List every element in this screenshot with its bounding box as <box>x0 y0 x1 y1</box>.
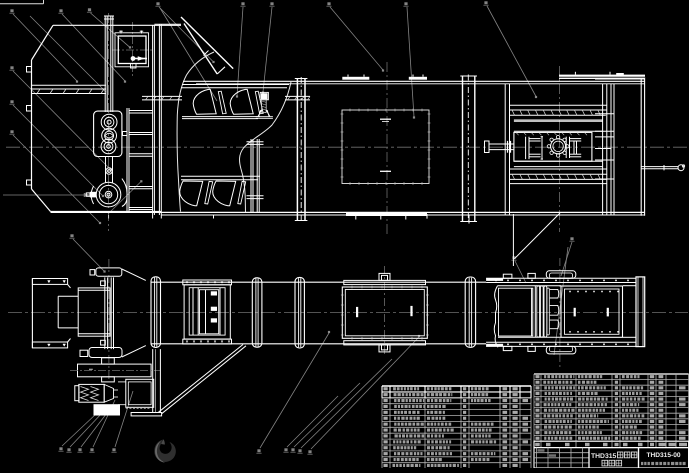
svg-text:THD315: THD315 <box>591 453 617 460</box>
svg-text:THD315-00: THD315-00 <box>646 452 680 459</box>
